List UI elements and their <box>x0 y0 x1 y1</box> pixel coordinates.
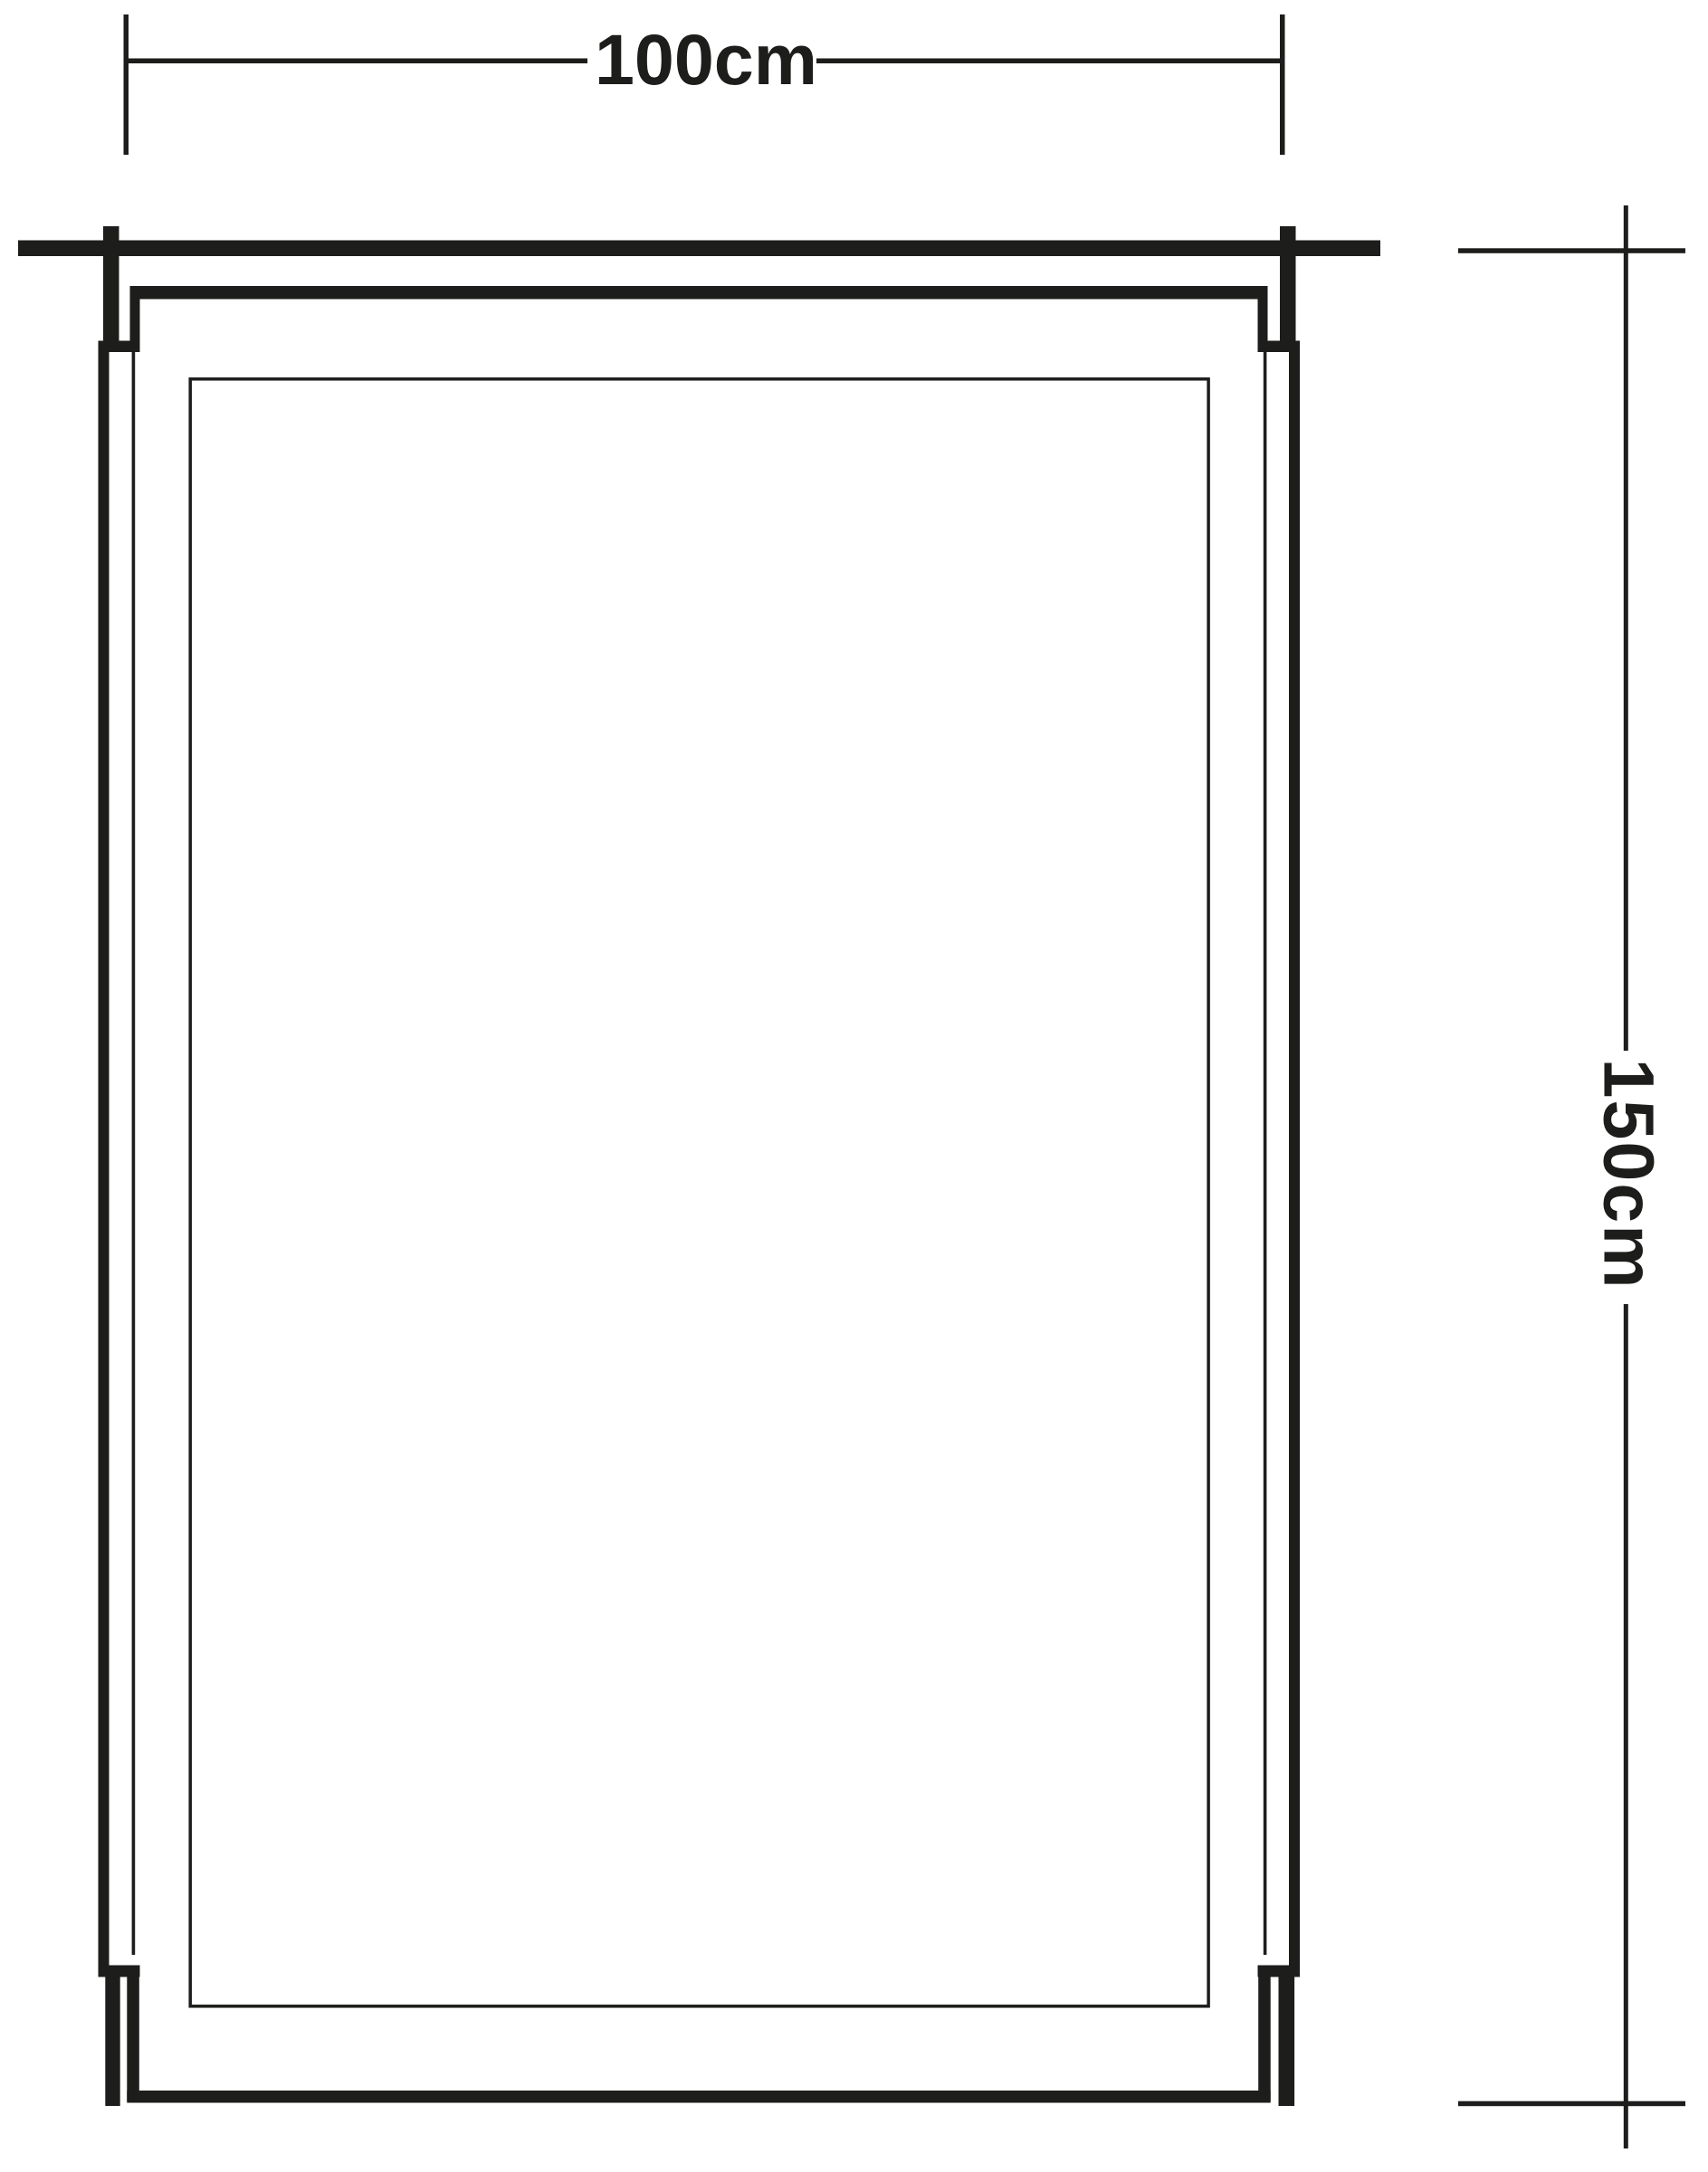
svg-text:100cm: 100cm <box>595 19 817 100</box>
svg-text:150cm: 150cm <box>1589 1059 1670 1291</box>
